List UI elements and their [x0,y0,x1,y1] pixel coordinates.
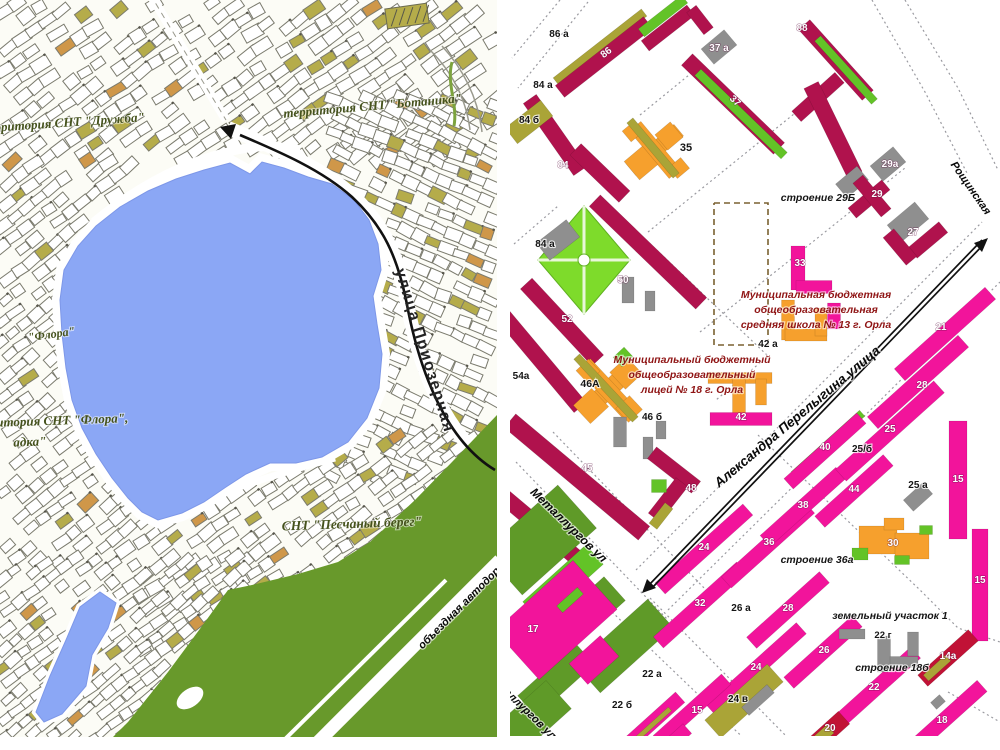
building-number: 88 [796,23,808,34]
building-number: 27 [907,227,919,238]
parcel-label: 84 б [519,114,539,126]
parcel-label: 84 а [533,80,553,91]
building [895,533,929,559]
building-number: 22 [868,682,880,693]
parcel-label: 22 г [874,630,891,641]
parcel-label: 46 б [642,411,662,423]
left-map-image: территория СНТ "Дружба"территория СНТ "Б… [0,0,516,750]
building [614,417,627,447]
parcel-label: строение 18б [855,662,929,674]
building-number: 45 [581,463,593,474]
building [852,548,868,560]
building-number: 30 [887,538,899,549]
parcel-label: 84 а [535,239,555,250]
building-number: 15 [691,705,703,716]
building-number: 14а [940,651,957,662]
building-number: 48 [685,483,697,494]
school-13-note: средняя школа № 13 г. Орла [741,319,892,331]
parcel-label: 24 в [728,694,748,705]
school-13-note: общеобразовательная [754,304,878,316]
building [656,421,666,439]
building-number: 26 [818,645,830,656]
building [908,632,919,656]
building-number: 33 [794,258,806,269]
building-number: 29а [882,159,899,170]
lyceum-18-note: лицей № 18 г. Орла [640,384,743,396]
parcel-label: 54а [513,371,530,382]
dual-map-screenshot: территория СНТ "Дружба"территория СНТ "Б… [0,0,1000,750]
building-number: 37 а [709,43,729,54]
building-number: 18 [936,715,948,726]
building [839,629,865,639]
territory-flora-2: адка" [13,433,46,449]
parcel-label: 25/б [852,443,872,455]
parcel-label: 22 б [612,699,632,711]
building-number: 20 [824,723,836,734]
building-number: 15 [952,474,964,485]
building-number: 40 [819,442,831,453]
building [920,526,933,535]
building-number: 24 [750,662,762,673]
parcel-label: 86 а [549,29,569,40]
building-number: 84 [557,160,569,171]
building-number: 21 [935,322,947,333]
parcel-label: 42 а [758,339,778,350]
parcel-label: строение 29Б [781,192,856,204]
building-number: 24 [698,542,710,553]
building-number: 42 [735,412,747,423]
school-13-note: Муниципальная бюджетная [741,289,891,301]
parcel-label: 46А [580,378,600,390]
building-number: 52 [561,314,573,325]
parcel-label: 22 а [642,669,662,680]
building [895,556,910,565]
building [645,291,655,311]
parcel-label: строение 36а [781,554,854,566]
building [884,518,904,530]
building-number: 32 [694,598,706,609]
building-number: 25 [884,424,896,435]
parcel-label: 26 а [731,603,751,614]
lyceum-18-note: общеобразовательный [629,369,757,381]
building [652,480,667,493]
building-number: 44 [848,484,860,495]
parcel-label: 25 а [908,480,928,491]
building [756,379,767,405]
parcel-label: 35 [680,142,692,154]
maps-canvas: территория СНТ "Дружба"территория СНТ "Б… [0,0,1000,750]
building-number: 36 [763,537,775,548]
building-number: 28 [782,603,794,614]
building-number: 50 [617,275,629,286]
building-number: 15 [974,575,986,586]
building-number: 28 [916,380,928,391]
building-number: 38 [797,500,809,511]
building-number: 29 [871,189,883,200]
building-number: 17 [527,624,539,635]
lyceum-18-note: Муниципальный бюджетный [613,354,771,366]
parcel-label: земельный участок 1 [832,610,948,622]
